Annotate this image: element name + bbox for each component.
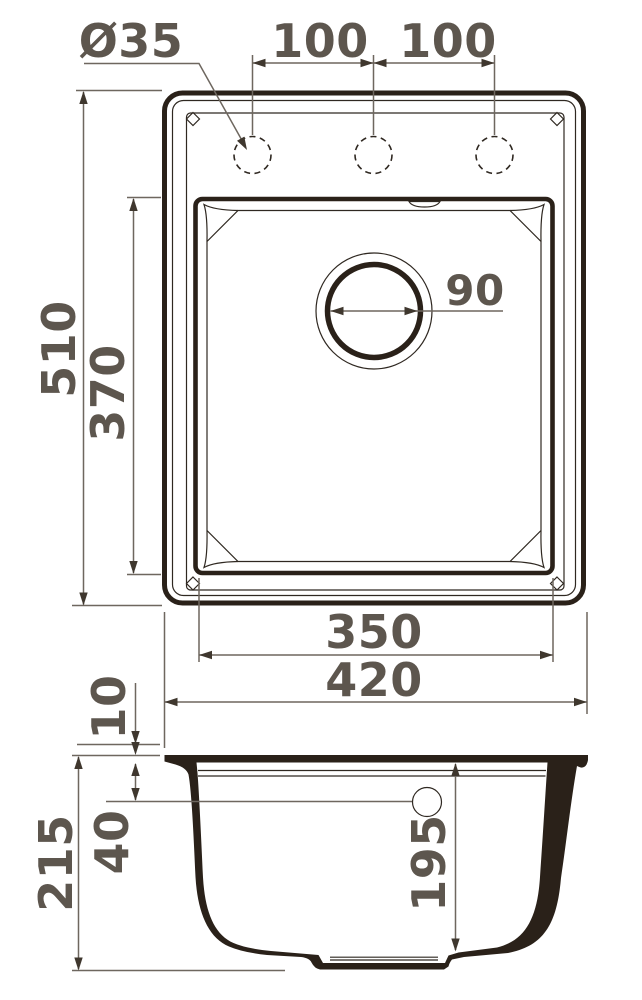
dim-arrow — [131, 788, 139, 801]
dim-label-drain-diameter: 90 — [445, 266, 504, 315]
sink-outer-offset-line — [173, 101, 576, 596]
dim-arrow — [129, 198, 137, 211]
rim-corner-mark-bottom-left — [187, 577, 200, 590]
dim-label-hole-spacing-right: 100 — [399, 14, 497, 68]
dim-overall-height: 215 — [29, 756, 83, 971]
faucet-hole-right — [476, 137, 513, 174]
dim-arrow — [131, 742, 139, 755]
rim-corner-mark-top-left — [187, 113, 200, 126]
dim-arrow — [79, 593, 87, 606]
rim-line — [187, 113, 565, 590]
dim-label-rim-thickness: 10 — [82, 674, 136, 739]
overflow-hole — [413, 788, 442, 817]
dim-arrow — [331, 307, 344, 315]
top-view-dimensions: Ø35 100 100 510 370 — [32, 14, 587, 748]
dim-arrow — [253, 59, 266, 67]
dim-arrow — [165, 698, 178, 706]
dim-label-hole-diameter: Ø35 — [79, 14, 184, 68]
dim-label-overall-height: 215 — [29, 814, 83, 912]
bowl-chamfer-top-left — [204, 205, 238, 242]
dim-bowl-length: 370 — [81, 198, 161, 575]
dim-arrow — [374, 59, 387, 67]
overflow-notch — [409, 202, 440, 208]
sink-technical-drawing: Ø35 100 100 510 370 — [0, 0, 642, 1000]
dim-arrow — [129, 561, 137, 574]
bowl-corner-chamfers — [204, 205, 544, 568]
bowl-outline — [196, 199, 553, 573]
dim-label-hole-spacing-left: 100 — [271, 14, 369, 68]
dim-arrow — [199, 651, 212, 659]
dim-arrow — [451, 939, 459, 952]
dim-label-bowl-length: 370 — [81, 344, 135, 442]
bowl-chamfer-bottom-left — [204, 531, 238, 568]
dim-arrow — [451, 763, 459, 776]
bowl-chamfer-top-right — [510, 205, 544, 242]
dim-label-bowl-depth: 195 — [402, 814, 456, 912]
dim-arrow — [574, 698, 587, 706]
dim-arrow — [405, 307, 418, 315]
top-view — [165, 93, 584, 603]
faucet-hole-center — [355, 137, 392, 174]
side-view-dimensions: 10 215 40 195 — [29, 674, 460, 970]
dim-arrow — [74, 958, 82, 971]
dim-label-overall-length: 510 — [32, 300, 86, 398]
dim-overflow-drop: 40 — [85, 763, 140, 875]
dim-arrow — [540, 651, 553, 659]
dim-label-overflow-drop: 40 — [85, 809, 139, 874]
dim-label-overall-width: 420 — [325, 653, 423, 707]
dim-arrow — [79, 91, 87, 104]
dim-label-bowl-width: 350 — [325, 605, 423, 659]
dim-rim-thickness: 10 — [82, 674, 140, 755]
rim-corner-mark-top-right — [551, 113, 564, 126]
sink-cross-section-body — [165, 755, 589, 970]
dim-arrow — [74, 756, 82, 769]
sink-outer-edge — [165, 93, 584, 603]
side-section-view — [106, 755, 588, 970]
drawing-canvas: Ø35 100 100 510 370 — [0, 0, 642, 1000]
dim-hole-spacing: 100 100 — [253, 14, 497, 135]
dim-arrow — [131, 763, 139, 776]
drain-recess-lines — [330, 957, 438, 960]
bowl-chamfer-bottom-right — [510, 531, 544, 568]
